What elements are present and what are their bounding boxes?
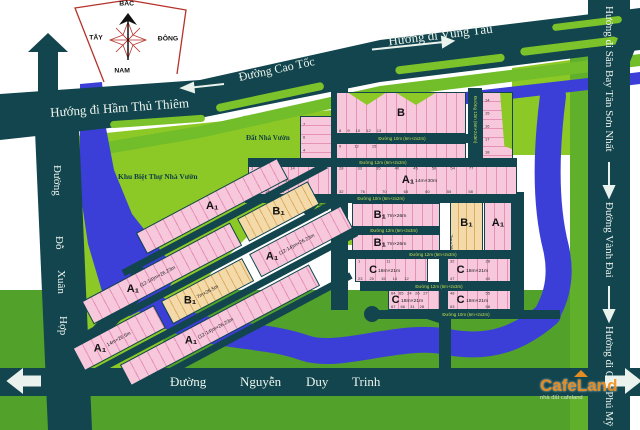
plot-map: BẮC TÂY ĐÔNG NAM Hướng đi Hầm Thủ Thiêm … (0, 0, 640, 430)
arrow-up-left-icon (28, 33, 68, 96)
block-letter: B₁ (374, 237, 387, 249)
plot-numbers: 32 28 (450, 259, 490, 264)
watermark-brand: CafeLand (540, 376, 617, 395)
street-h6: Đường 12m (6m+2x3m) (360, 282, 518, 291)
road-label-dxh-duong: Đường (51, 165, 63, 196)
compass-north-label: BẮC (119, 0, 134, 7)
street-h7: Đường 10m (6m+2x2m) (372, 310, 560, 319)
plot-numbers: 23 20 15 14 12 (358, 277, 409, 282)
block-letter: B₁ (184, 294, 197, 306)
block-letter: A₁ (127, 283, 140, 295)
block-b1-row1: B₁ 7m×26m (352, 203, 440, 227)
road-label-ndt-nguyen: Nguyễn (240, 374, 281, 390)
plot-numbers: 8 9 10 12 13 (339, 129, 381, 134)
street-label: Đường 12m (6m+2x3m) (359, 160, 406, 165)
house-icon (574, 370, 588, 377)
block-dims: 18m×21m (466, 267, 488, 273)
street-label: Đường 12m (6m+2x3m) (409, 252, 456, 257)
block-a1-wide: 28 33 35 40 45 50 54 77 A₁ 14m×30m 32 76… (336, 165, 517, 195)
green-wedge (495, 93, 512, 149)
road-label-ndt-duy: Duy (306, 374, 328, 390)
street-label: Đường 12m (6m+2x3m) (370, 228, 417, 233)
area-label-garden: Đất Nhà Vườn (246, 134, 290, 142)
block-letter: A₁ (185, 334, 198, 346)
block-dims: 14m×30m (415, 177, 437, 183)
block-dims: 18m×21m (401, 297, 423, 303)
street-label: Đường 10m (6m+2x2m) (442, 312, 489, 317)
block-letter: A₁ (94, 342, 107, 354)
block-dims: 7m×26m (387, 212, 406, 218)
block-letter: A₁ (206, 200, 219, 212)
block-dims: (12-14)m×26.23m (138, 264, 176, 288)
compass-west-label: TÂY (89, 34, 103, 42)
green-zigzag (395, 92, 437, 105)
block-letter: B₁ (460, 217, 473, 229)
road-label-dxh-do: Đỗ (53, 236, 65, 249)
water-canal-right (548, 96, 559, 312)
block-dims: (12-14)m×26.23m (278, 232, 316, 256)
street-label: Đường 10m (6m+2x2m) (378, 136, 425, 141)
block-letter: A₁ (492, 217, 505, 229)
compass-east-label: ĐÔNG (158, 35, 178, 43)
block-c3: 64 65 24 26 27 C 18m×21m 67 66 31 28 (388, 290, 440, 310)
road-label-san-bay: Hướng đi Sân Bay Tân Sơn Nhất (603, 6, 615, 152)
block-letter: A₁ (266, 251, 279, 263)
block-c2: 32 28 C 18m×21m 47 40 (447, 258, 511, 282)
street-label: Đường 10m (6m+2x2m) (357, 196, 404, 201)
compass-south-label: NAM (114, 67, 129, 75)
road-label-vanh-dai: Đường Vành Đai (603, 202, 615, 278)
block-letter: B₁ (374, 209, 387, 221)
street-label-vertical: Đường 12m (6m+2x3m) (473, 96, 478, 143)
block-letter: A₁ (402, 174, 415, 186)
block-dims: 18m×21m (466, 297, 488, 303)
block-b: B 8 9 10 12 13 (336, 92, 466, 134)
block-b1-tan: B₁ 7m×28m (450, 200, 483, 256)
block-dims: 7m×26m (387, 240, 406, 246)
block-a1-col: A₁ 18m×26m (484, 200, 512, 256)
road-label-ndt-trinh: Trinh (352, 374, 380, 390)
block-letter: C (457, 264, 465, 276)
road-label-ndt-duong: Đường (170, 374, 206, 390)
block-letter: B₁ (272, 206, 285, 218)
watermark-tagline: nhà đất cafeland (540, 394, 596, 400)
plot-numbers: 9 12 15 (339, 144, 376, 149)
street-h1: Đường 10m (6m+2x2m) (336, 134, 468, 143)
street-label: Đường 12m (6m+2x3m) (415, 284, 462, 289)
watermark: CafeLand nhà đất cafeland (540, 376, 617, 403)
block-c4: 48 55 C 18m×21m 63 58 (447, 290, 511, 310)
block-letter: B (397, 107, 405, 119)
block-dims: 18m×21m (378, 267, 400, 273)
green-zigzag (347, 92, 387, 105)
block-dims: 7m×26.5m (195, 283, 218, 299)
plot-numbers: 63 58 (450, 305, 490, 310)
area-label-villa: Khu Biệt Thự Nhà Vườn (118, 172, 198, 181)
plot-numbers: 67 66 31 28 (391, 305, 424, 310)
block-dims: 14m×26.5m (105, 330, 131, 347)
plot-numbers: 47 40 (450, 277, 490, 282)
plot-numbers: 14 15 16 17 18 (485, 94, 489, 159)
